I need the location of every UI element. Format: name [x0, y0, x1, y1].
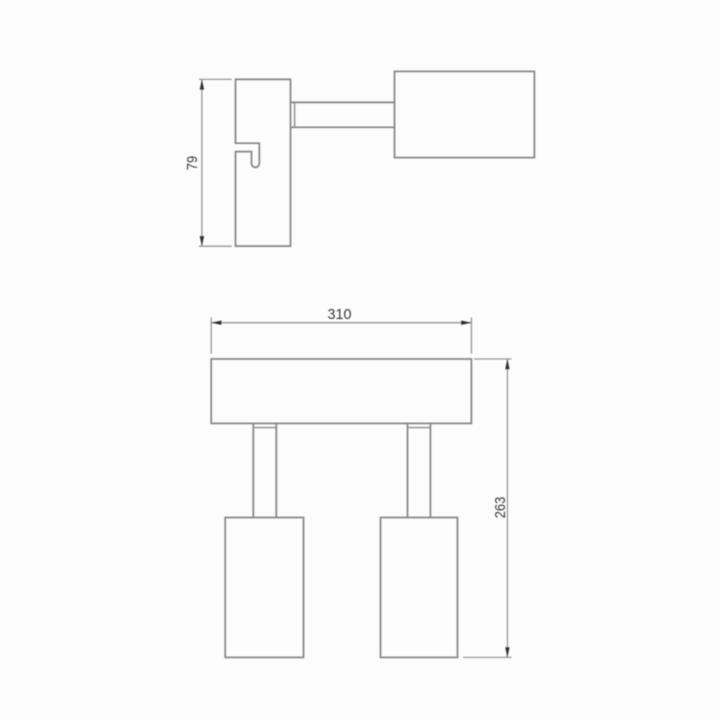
- svg-text:310: 310: [328, 306, 352, 323]
- svg-text:263: 263: [492, 497, 509, 519]
- svg-text:79: 79: [184, 156, 201, 171]
